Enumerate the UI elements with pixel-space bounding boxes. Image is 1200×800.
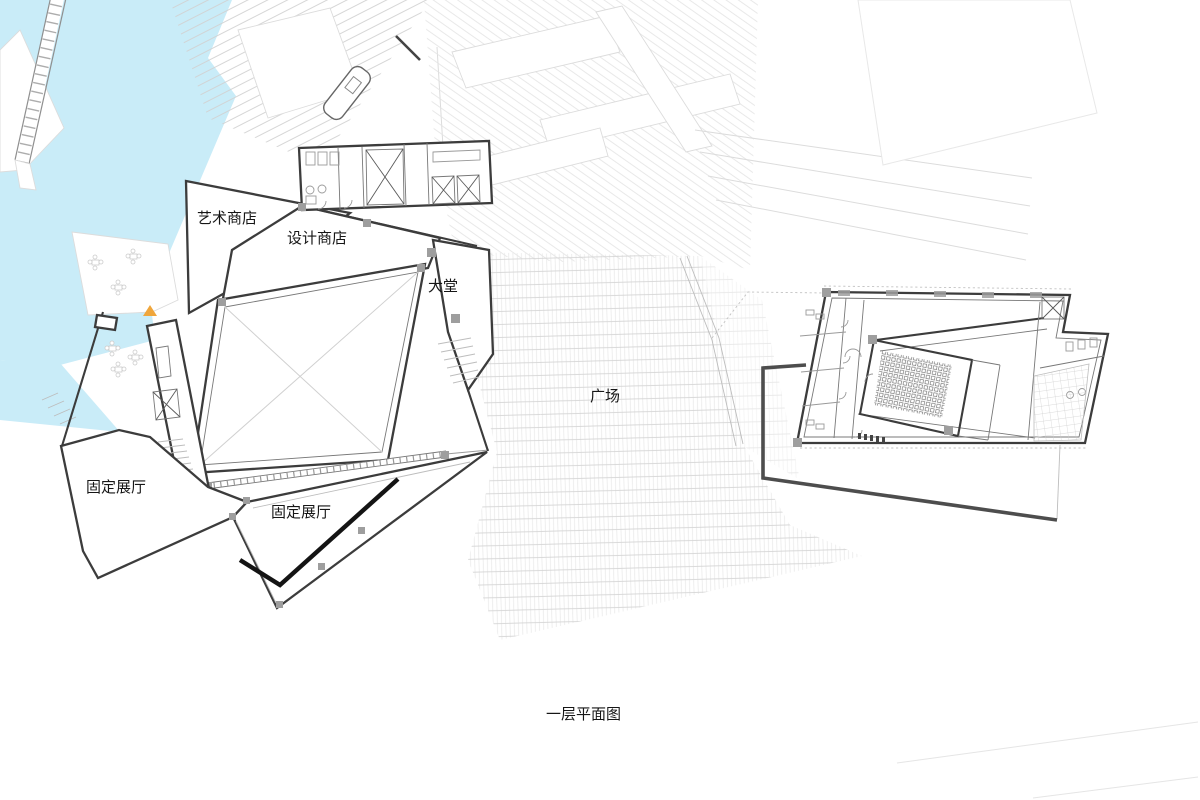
label-lobby: 大堂 bbox=[428, 279, 458, 296]
drawing-caption: 一层平面图 bbox=[546, 707, 621, 724]
small-room bbox=[95, 315, 117, 330]
tiled-entry-hall bbox=[1034, 364, 1089, 441]
label-exhibit-bottom: 固定展厅 bbox=[271, 505, 331, 522]
floor-plan-canvas: 艺术商店 设计商店 大堂 广场 固定展厅 固定展厅 一层平面图 bbox=[0, 0, 1200, 800]
label-design-shop: 设计商店 bbox=[287, 231, 347, 248]
label-art-shop: 艺术商店 bbox=[197, 211, 257, 228]
label-plaza: 广场 bbox=[590, 389, 620, 406]
waterside-terrace bbox=[72, 232, 178, 315]
service-bar bbox=[299, 141, 492, 210]
label-exhibit-left: 固定展厅 bbox=[86, 480, 146, 497]
